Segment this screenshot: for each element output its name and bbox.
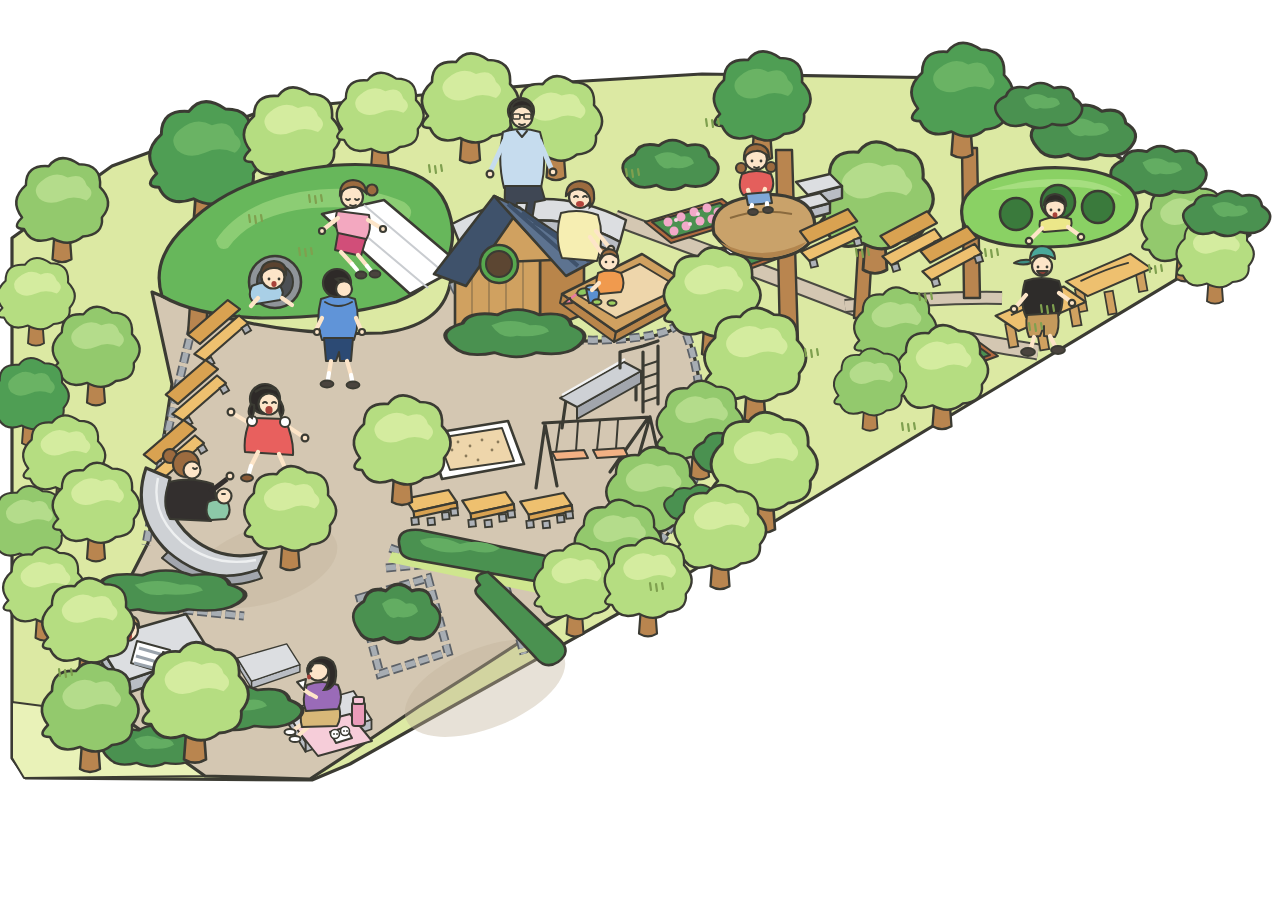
- park-scene-svg: [0, 0, 1280, 905]
- park-illustration: [0, 0, 1280, 905]
- center-benches: [405, 489, 574, 530]
- thermos: [352, 697, 365, 726]
